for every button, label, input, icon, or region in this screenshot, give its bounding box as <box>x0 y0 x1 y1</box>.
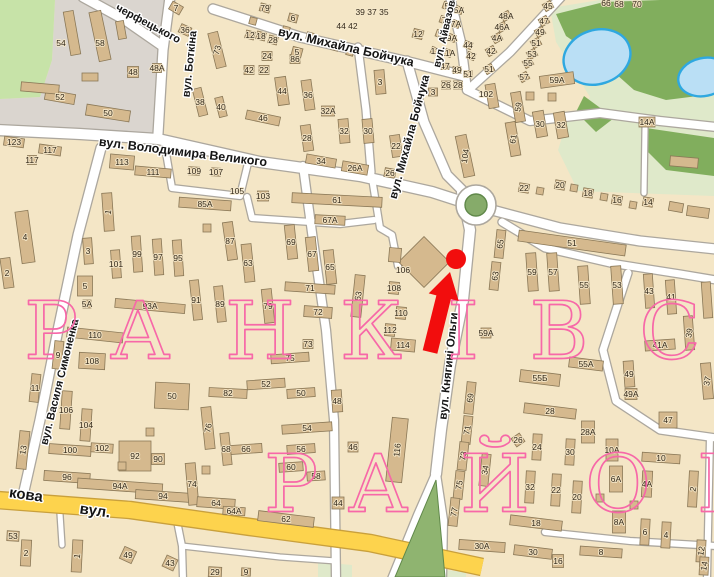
building-number: 12 <box>245 30 255 40</box>
building-number: 59 <box>512 101 524 112</box>
watermark-letter: Й <box>460 435 530 531</box>
building-number: 64А <box>226 506 241 516</box>
building-number: 65 <box>325 262 335 272</box>
road <box>60 514 62 545</box>
building-number: 61 <box>332 195 342 205</box>
building-number: 20 <box>572 492 582 502</box>
building-number: 51 <box>531 38 541 48</box>
building-number: 102 <box>479 89 493 99</box>
building <box>670 156 699 168</box>
building-number: 4 <box>23 232 28 242</box>
building-number: 28 <box>545 406 555 416</box>
building-number: 37 <box>701 375 713 386</box>
watermark-letter: Р <box>264 438 318 531</box>
watermark-letter: А <box>110 285 171 378</box>
building-number: 108 <box>85 356 99 366</box>
building-number: 113 <box>115 157 129 167</box>
building-number: 11 <box>31 383 40 393</box>
building-number: 49 <box>624 369 634 379</box>
building-number: 89 <box>215 299 225 309</box>
building-number: 117 <box>43 145 57 155</box>
building-number: 34 <box>316 156 326 166</box>
building-number: 14 <box>698 560 710 571</box>
building-number: 30 <box>565 447 575 457</box>
building-number: 20 <box>555 180 565 190</box>
building-number: 71 <box>305 283 315 293</box>
building-number: 57 <box>548 267 558 277</box>
building-number: 38 <box>195 97 205 107</box>
building-number: 32 <box>339 126 349 136</box>
building-number: 22 <box>551 485 561 495</box>
building-number: 102 <box>95 443 109 453</box>
marker-dot <box>446 249 466 269</box>
building-number: 64 <box>211 498 221 508</box>
building-number: 58 <box>95 38 105 48</box>
building-number: 54 <box>302 423 312 433</box>
building-number: 67А <box>322 215 337 225</box>
building-number: 96 <box>62 472 72 482</box>
building <box>570 184 578 192</box>
building-number: 90 <box>153 454 163 464</box>
building-number: 30 <box>528 547 538 557</box>
building-number: 63 <box>243 258 253 268</box>
building-number: 117 <box>25 155 39 165</box>
building-number: 94А <box>112 481 127 491</box>
building-number: 57 <box>519 72 529 82</box>
building-number: 22 <box>519 183 529 193</box>
building-number: 42 <box>466 51 476 61</box>
building-number: 29 <box>210 567 220 577</box>
building-number: 45 <box>543 1 553 11</box>
building-number: 91 <box>191 295 201 305</box>
building-number: 2 <box>24 548 29 558</box>
building-number: 100 <box>63 445 77 455</box>
watermark-letter: Н <box>697 438 714 531</box>
building-number: 51 <box>567 238 577 248</box>
building-number: 18 <box>583 188 593 198</box>
building-number: 28 <box>302 133 312 143</box>
building-number: 52 <box>261 379 271 389</box>
building <box>526 92 534 100</box>
building-number: 46 <box>258 113 268 123</box>
building-number: 3 <box>431 87 436 97</box>
building-number: 50 <box>167 391 177 401</box>
building-number: 4А <box>492 33 503 43</box>
building-number: 63 <box>489 270 501 281</box>
building-number: 30А <box>474 541 489 551</box>
building-number: 49А <box>623 389 638 399</box>
building-number: 3 <box>378 77 383 87</box>
watermark-letter: Н <box>225 285 295 378</box>
building-number: 53 <box>612 280 622 290</box>
building-number: 73 <box>303 339 313 349</box>
building-number: 28 <box>453 80 463 90</box>
building-number: 3 <box>86 246 91 256</box>
building-number: 67 <box>307 249 317 259</box>
building-number: 59А <box>478 328 493 338</box>
building-number: 2 <box>5 268 10 278</box>
building-number: 55 <box>523 58 533 68</box>
building-number: 24 <box>532 442 542 452</box>
building-number: 28А <box>580 427 595 437</box>
building-number: 5 <box>83 281 88 291</box>
building-number: 5А <box>82 299 93 309</box>
building <box>203 224 211 232</box>
building-number: 40 <box>216 102 226 112</box>
building-number: 52 <box>55 92 65 102</box>
building-number: 109 <box>187 166 201 176</box>
building <box>668 201 683 212</box>
building-number: 8 <box>599 547 604 557</box>
watermark-letter: Р <box>24 285 78 378</box>
building-number: 49 <box>535 27 545 37</box>
building-number: 12 <box>695 545 707 556</box>
building-number: 32А <box>320 106 335 116</box>
building-number: 69 <box>464 392 476 403</box>
building <box>536 187 544 195</box>
building-number: 16 <box>612 195 622 205</box>
building-number: 43 <box>165 558 175 568</box>
map-viewport[interactable]: 54584848А5250367733840123117117113111109… <box>0 0 714 577</box>
building-number: 32 <box>556 120 566 130</box>
building-number: 42 <box>486 46 496 56</box>
building-number: 7 <box>174 3 179 13</box>
building-number: 82 <box>223 388 233 398</box>
building-number: 97 <box>153 252 163 262</box>
building-number: 18 <box>531 518 541 528</box>
building-number: 94 <box>158 491 168 501</box>
building-number: 14 <box>643 197 653 207</box>
building-number: 26А <box>347 163 362 173</box>
building-number: 46А <box>494 22 509 32</box>
building-number: 44 <box>277 86 287 96</box>
building-number: 65 <box>494 238 506 249</box>
building-number: 53 <box>8 531 18 541</box>
building-number: 10 <box>656 453 666 463</box>
building-number: 24 <box>262 51 272 61</box>
building-number: 123 <box>7 137 21 147</box>
building-number: 30 <box>535 119 545 129</box>
building-number: 47 <box>539 16 549 26</box>
building-number: 16 <box>553 556 563 566</box>
building-number: 72 <box>313 307 323 317</box>
building-number: 101 <box>109 259 123 269</box>
building-number: 110 <box>88 330 102 340</box>
building-number: 66 <box>241 444 251 454</box>
building-number: 61 <box>507 133 519 144</box>
building-number: 59 <box>527 267 537 277</box>
building-number: 48 <box>128 67 138 77</box>
building-number: 103 <box>256 191 270 201</box>
building-number: 111 <box>147 167 160 177</box>
building-number: 49 <box>123 550 133 560</box>
building-number: 12 <box>413 29 423 39</box>
building-number: 106 <box>59 405 73 415</box>
watermark-letter: С <box>639 285 700 378</box>
building-number: 107 <box>209 167 223 177</box>
building <box>146 428 154 436</box>
watermark-letter: В <box>530 285 589 378</box>
building-number: 50 <box>296 388 306 398</box>
building-number: 51 <box>463 69 473 79</box>
building-number: 30 <box>363 126 373 136</box>
watermark-letter: К <box>340 285 402 378</box>
building-number: 68 <box>221 444 231 454</box>
building-number: 18 <box>256 31 266 41</box>
building <box>548 93 556 101</box>
building <box>82 73 98 81</box>
building-number: 44 <box>333 498 343 508</box>
building <box>202 466 210 474</box>
building-number: 76 <box>202 422 214 433</box>
building-number: 48А <box>149 63 164 73</box>
building <box>118 462 126 470</box>
building-number: 99 <box>132 249 142 259</box>
building-number: 69 <box>286 237 296 247</box>
building <box>388 248 401 263</box>
watermark-letter: А <box>348 438 409 531</box>
road <box>644 128 645 193</box>
building-number: 42 <box>244 65 254 75</box>
building-number: 22 <box>259 65 269 75</box>
building-number: 66 <box>601 0 611 8</box>
building-number: 44 <box>463 40 473 50</box>
building <box>249 17 258 26</box>
building-number: 4 <box>664 530 669 540</box>
building-number: 36 <box>303 90 313 100</box>
building-number: 48 <box>332 396 342 406</box>
building-number: 77 <box>448 506 460 517</box>
building-number: 39 37 35 <box>355 7 388 17</box>
roundabout-island <box>465 194 487 216</box>
building-number: 47 <box>663 415 673 425</box>
building-number: 79 <box>260 3 270 13</box>
building <box>629 201 637 209</box>
building-number: 5 <box>295 47 300 57</box>
building-number: 13 <box>17 444 29 455</box>
building-number: 105 <box>230 186 244 196</box>
building-number: 59А <box>549 75 564 85</box>
city-map[interactable]: 54584848А5250367733840123117117113111109… <box>0 0 714 577</box>
building-number: 95 <box>173 253 183 263</box>
roundabout <box>456 185 496 225</box>
building-number: 50 <box>103 108 113 118</box>
building-number: 85А <box>197 199 212 209</box>
building-number: 104 <box>79 420 93 430</box>
building-number: 87 <box>225 236 235 246</box>
building-number: 48А <box>498 11 513 21</box>
building-number: 6 <box>291 13 296 23</box>
watermark-letter: О <box>585 438 651 531</box>
building-number: 106 <box>396 265 410 275</box>
building-number: 70 <box>632 0 642 9</box>
building-number: 14А <box>639 117 654 127</box>
building-number: 44 42 <box>336 21 358 31</box>
building-number: 26 <box>441 80 451 90</box>
building-number: 9 <box>244 567 249 577</box>
building-number: 68 <box>614 0 624 9</box>
building-number: 92 <box>130 451 140 461</box>
building <box>600 193 608 201</box>
building-number: 49 <box>452 65 462 75</box>
building-number: 71 <box>461 424 473 435</box>
building-number: 51 <box>484 64 494 74</box>
building-number: 74 <box>187 479 197 489</box>
building-number: 54 <box>56 38 66 48</box>
